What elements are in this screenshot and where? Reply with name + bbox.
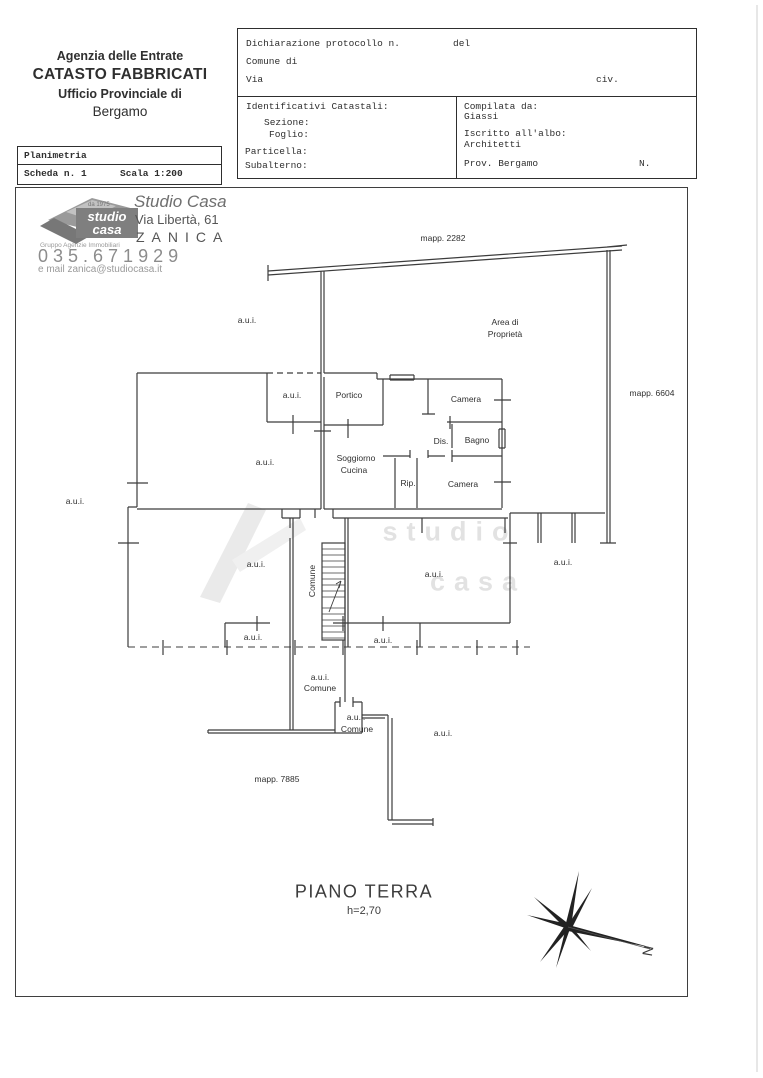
mapp-2282-label: mapp. 2282 xyxy=(421,233,466,243)
aui-label-small-comune-room: a.u.i. xyxy=(347,712,365,722)
mapp-6604-label: mapp. 6604 xyxy=(630,388,675,398)
portico-label: Portico xyxy=(336,390,362,400)
aui-label-right-porch: a.u.i. xyxy=(374,635,392,645)
aui-label-far-left: a.u.i. xyxy=(66,496,84,506)
aui-label-lower-right-room: a.u.i. xyxy=(425,569,443,579)
bagno-label: Bagno xyxy=(465,435,490,445)
walls xyxy=(118,245,627,826)
soggiorno-label: Soggiorno xyxy=(337,453,376,463)
ceiling-height-note: h=2,70 xyxy=(347,905,381,917)
compass-rose xyxy=(527,871,653,968)
staircase xyxy=(322,543,345,640)
aui-label-small-room: a.u.i. xyxy=(283,390,301,400)
cucina-label: Cucina xyxy=(341,465,367,475)
area-di-label: Area di xyxy=(492,317,519,327)
cadastral-document-page: Agenzia delle Entrate CATASTO FABBRICATI… xyxy=(0,0,763,1078)
camera-north-label: Camera xyxy=(451,394,481,404)
floor-plan-drawing xyxy=(0,0,763,1078)
aui-label-left-porch: a.u.i. xyxy=(244,632,262,642)
comune-path-label: Comune xyxy=(304,683,336,693)
aui-label-big-room: a.u.i. xyxy=(256,457,274,467)
rip-label: Rip. xyxy=(400,478,415,488)
aui-label-right-yard: a.u.i. xyxy=(554,557,572,567)
aui-label-upper-yard: a.u.i. xyxy=(238,315,256,325)
mapp-7885-label: mapp. 7885 xyxy=(255,774,300,784)
comune-stair-label: Comune xyxy=(307,565,317,597)
aui-label-southeast: a.u.i. xyxy=(434,728,452,738)
floor-title: PIANO TERRA xyxy=(295,882,433,903)
dis-label: Dis. xyxy=(434,436,449,446)
camera-south-label: Camera xyxy=(448,479,478,489)
aui-label-path: a.u.i. xyxy=(311,672,329,682)
aui-label-lower-left-room: a.u.i. xyxy=(247,559,265,569)
comune-room-label: Comune xyxy=(341,724,373,734)
proprieta-label: Proprietà xyxy=(488,329,523,339)
